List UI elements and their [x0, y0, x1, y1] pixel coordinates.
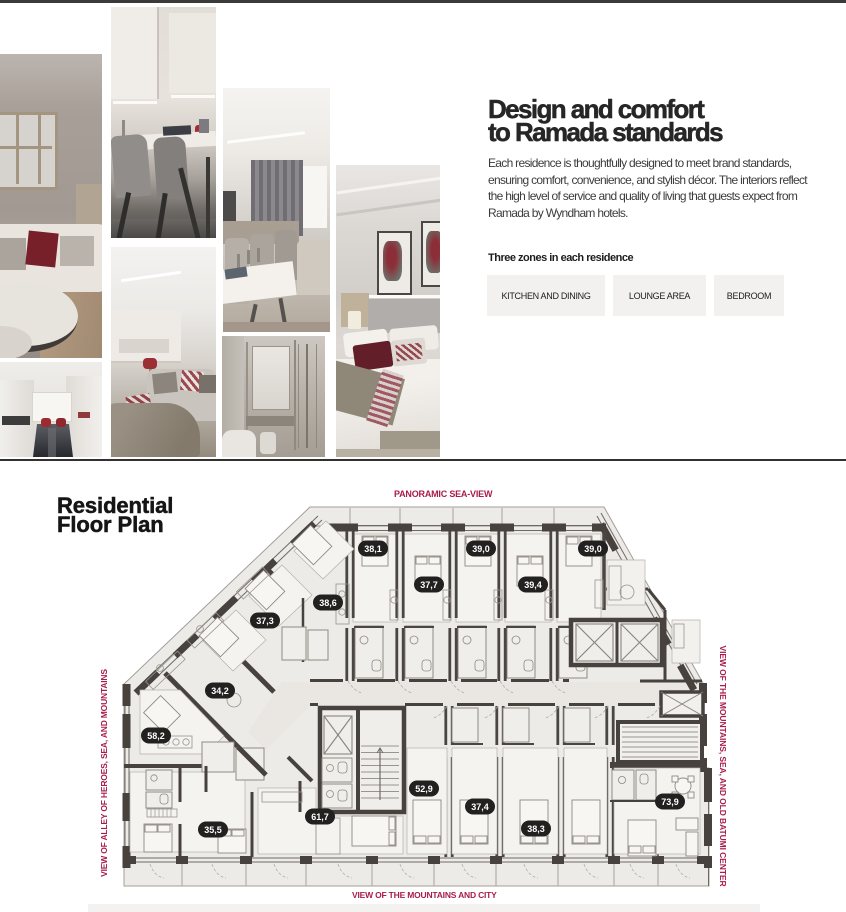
svg-text:35,5: 35,5 [204, 825, 222, 835]
svg-text:37,7: 37,7 [420, 580, 438, 590]
svg-text:39,0: 39,0 [472, 544, 490, 554]
svg-text:39,0: 39,0 [584, 544, 602, 554]
svg-text:39,4: 39,4 [524, 580, 542, 590]
svg-text:38,1: 38,1 [364, 544, 382, 554]
svg-text:58,2: 58,2 [147, 731, 165, 741]
svg-text:52,9: 52,9 [415, 784, 433, 794]
svg-text:61,7: 61,7 [311, 812, 329, 822]
svg-text:38,3: 38,3 [527, 824, 545, 834]
svg-text:37,3: 37,3 [256, 616, 274, 626]
svg-text:38,6: 38,6 [319, 598, 337, 608]
svg-text:37,4: 37,4 [471, 802, 489, 812]
svg-text:73,9: 73,9 [661, 797, 679, 807]
svg-text:34,2: 34,2 [211, 686, 229, 696]
